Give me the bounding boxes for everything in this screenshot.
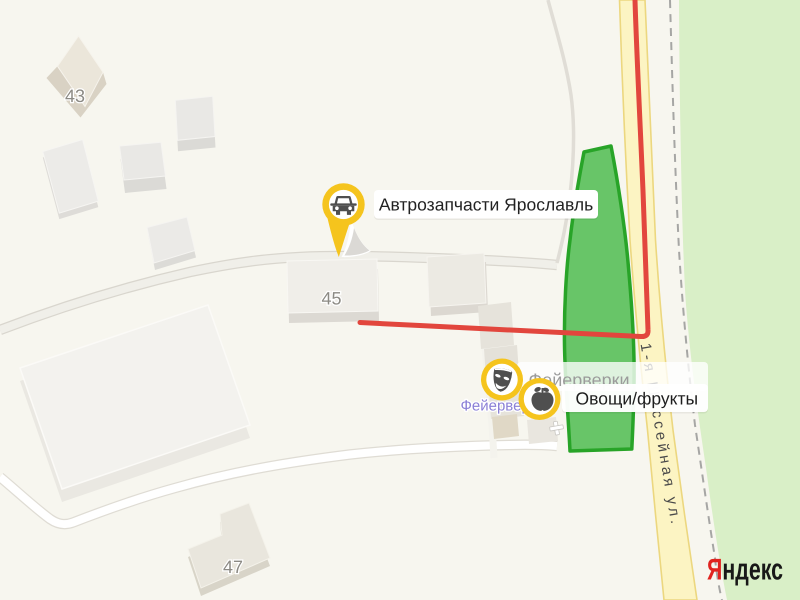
svg-text:Автрозапчасти Ярославль: Автрозапчасти Ярославль xyxy=(379,195,593,215)
svg-text:43: 43 xyxy=(65,86,85,106)
svg-text:Овощи/фрукты: Овощи/фрукты xyxy=(576,389,699,409)
svg-text:45: 45 xyxy=(321,289,341,309)
svg-text:Яндекс: Яндекс xyxy=(707,554,783,587)
svg-text:47: 47 xyxy=(223,557,243,577)
